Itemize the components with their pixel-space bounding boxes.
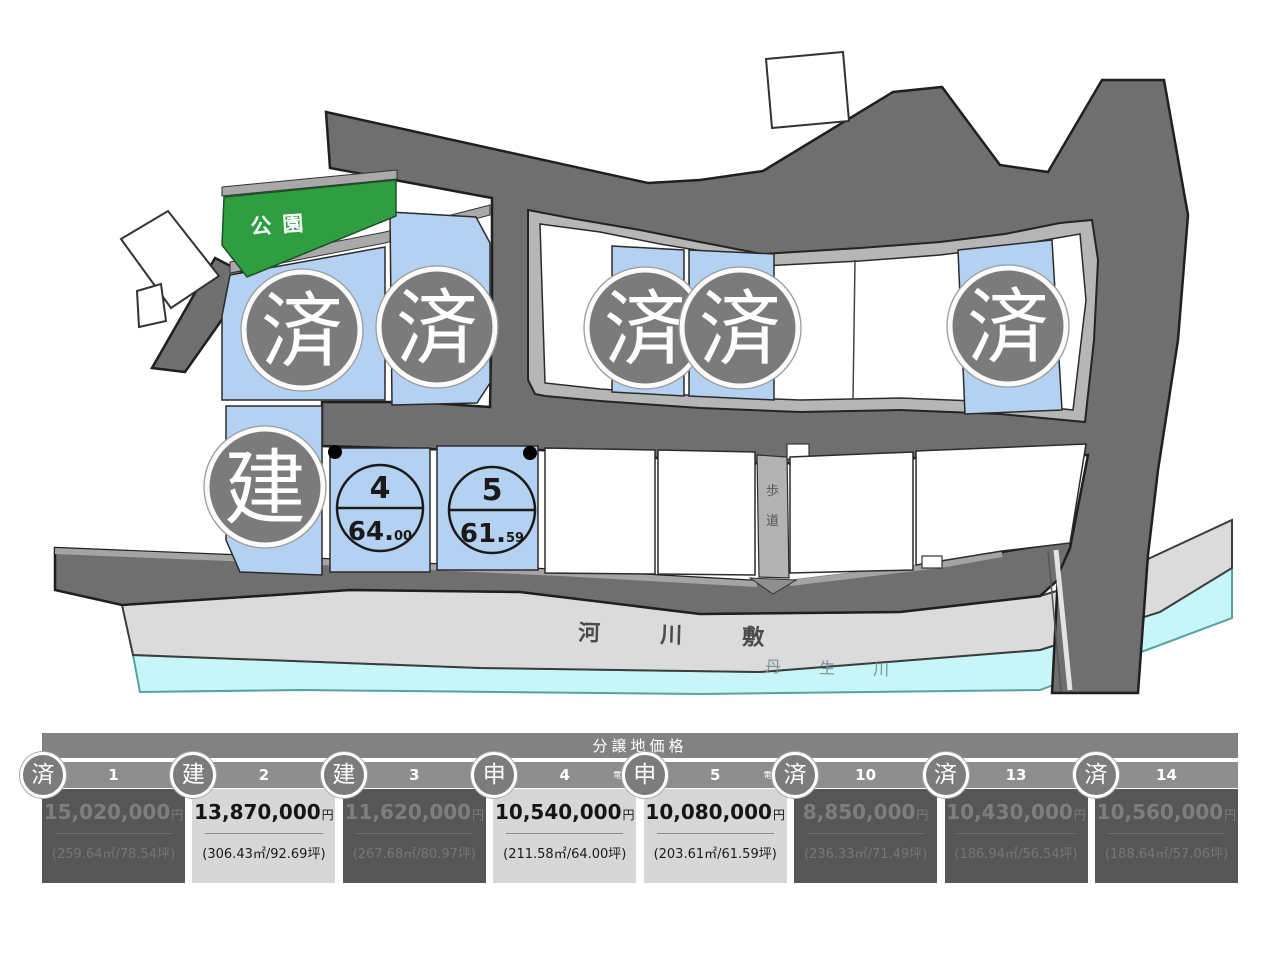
- map-lot-5: [437, 446, 538, 570]
- lot-price: 10,560,000円: [1095, 801, 1238, 823]
- electric-pole-dot-1: [328, 445, 342, 459]
- sold-glyph: 済: [604, 283, 686, 378]
- divider: [506, 833, 623, 834]
- yen-unit: 円: [322, 808, 334, 822]
- lot-card-5: 申 5 電柱 10,080,000円 (203.61㎡/61.59坪): [644, 762, 787, 883]
- lot-number: 13: [1006, 766, 1027, 784]
- map-badge-sold-4: 済: [679, 267, 801, 389]
- map-lot-4: [330, 448, 430, 572]
- divider: [55, 833, 172, 834]
- sold-glyph: 済: [699, 283, 781, 378]
- lot-card-body: 11,620,000円 (267.68㎡/80.97坪): [343, 789, 486, 883]
- status-badge: 申: [622, 752, 668, 798]
- building-top-left-2: [137, 284, 166, 327]
- lot-number: 14: [1156, 766, 1177, 784]
- lot-card-body: 13,870,000円 (306.43㎡/92.69坪): [192, 789, 335, 883]
- lot-5-size: 61.: [460, 519, 506, 549]
- lot-size: (259.64㎡/78.54坪): [42, 843, 185, 862]
- site-map-svg: 公園 4 64.00 5 61.59 済 済 済: [0, 0, 1279, 715]
- sold-glyph: 済: [967, 281, 1049, 376]
- lot-number: 3: [409, 766, 419, 784]
- divider: [957, 833, 1074, 834]
- lot-5-number: 5: [482, 473, 503, 508]
- divider: [657, 833, 774, 834]
- lot-size: (267.68㎡/80.97坪): [343, 843, 486, 862]
- lot-circle-4: 4 64.00: [337, 465, 423, 551]
- yen-unit: 円: [916, 808, 928, 822]
- map-lot-white-2: [658, 450, 755, 575]
- lot-size: (236.33㎡/71.49坪): [794, 843, 937, 862]
- lot-4-number: 4: [370, 471, 391, 506]
- lot-number: 2: [259, 766, 269, 784]
- lot-card-body: 10,430,000円 (186.94㎡/56.54坪): [945, 789, 1088, 883]
- map-lot-white-3: [790, 452, 913, 573]
- status-badge: 済: [923, 752, 969, 798]
- lot-card-1: 済 1 15,020,000円 (259.64㎡/78.54坪): [42, 762, 185, 883]
- lot-size: (306.43㎡/92.69坪): [192, 843, 335, 862]
- lot-price: 10,080,000円: [644, 801, 787, 823]
- map-badge-sold-5: 済: [947, 265, 1069, 387]
- subdivision-map: 公園 4 64.00 5 61.59 済 済 済: [0, 0, 1279, 715]
- status-badge: 建: [321, 752, 367, 798]
- divider: [356, 833, 473, 834]
- lot-size: (188.64㎡/57.06坪): [1095, 843, 1238, 862]
- map-badge-sold-2: 済: [376, 266, 498, 388]
- lot-card-body: 15,020,000円 (259.64㎡/78.54坪): [42, 789, 185, 883]
- lot-card-body: 10,080,000円 (203.61㎡/61.59坪): [644, 789, 787, 883]
- lot-size: (211.58㎡/64.00坪): [493, 843, 636, 862]
- sold-glyph: 済: [396, 282, 478, 377]
- status-badge: 済: [772, 752, 818, 798]
- lot-price: 10,540,000円: [493, 801, 636, 823]
- lot-card-body: 8,850,000円 (236.33㎡/71.49坪): [794, 789, 937, 883]
- electric-pole-dot-2: [523, 446, 537, 460]
- walkway-label-bottom: 道: [766, 514, 779, 529]
- lot-card-4: 申 4 電柱 10,540,000円 (211.58㎡/64.00坪): [493, 762, 636, 883]
- lot-price: 11,620,000円: [343, 801, 486, 823]
- lot-number: 1: [108, 766, 118, 784]
- lot-size: (186.94㎡/56.54坪): [945, 843, 1088, 862]
- lot-number: 4: [560, 766, 570, 784]
- lot-4-size: 64.: [348, 517, 394, 547]
- yen-unit: 円: [472, 808, 484, 822]
- lot-size: (203.61㎡/61.59坪): [644, 843, 787, 862]
- built-glyph: 建: [224, 442, 306, 537]
- lot-5-size-dec: 59: [506, 531, 524, 546]
- status-badge: 済: [1073, 752, 1119, 798]
- lot-card-14: 済 14 10,560,000円 (188.64㎡/57.06坪): [1095, 762, 1238, 883]
- lot-circle-5: 5 61.59: [449, 467, 535, 553]
- lot-card-body: 10,560,000円 (188.64㎡/57.06坪): [1095, 789, 1238, 883]
- map-badge-sold-1: 済: [241, 269, 363, 391]
- lot-card-3: 建 3 11,620,000円 (267.68㎡/80.97坪): [343, 762, 486, 883]
- yen-unit: 円: [623, 808, 635, 822]
- lot-number: 10: [855, 766, 876, 784]
- lot-4-size-dec: 00: [394, 529, 412, 544]
- yen-unit: 円: [773, 808, 785, 822]
- status-badge: 済: [20, 752, 66, 798]
- yen-unit: 円: [171, 808, 183, 822]
- lot-price: 13,870,000円: [192, 801, 335, 823]
- divider: [1108, 833, 1225, 834]
- price-table-cells: 済 1 15,020,000円 (259.64㎡/78.54坪) 建 2 13,…: [42, 762, 1238, 883]
- park-label: 公園: [250, 211, 316, 239]
- building-top-right: [766, 52, 849, 128]
- lot-card-body: 10,540,000円 (211.58㎡/64.00坪): [493, 789, 636, 883]
- yen-unit: 円: [1224, 808, 1236, 822]
- divider: [807, 833, 924, 834]
- lot-price: 15,020,000円: [42, 801, 185, 823]
- walkway-label-top: 歩: [766, 484, 779, 499]
- status-badge: 申: [471, 752, 517, 798]
- lot-card-2: 建 2 13,870,000円 (306.43㎡/92.69坪): [192, 762, 335, 883]
- lot-card-13: 済 13 10,430,000円 (186.94㎡/56.54坪): [945, 762, 1088, 883]
- divider: [205, 833, 322, 834]
- lot-price: 8,850,000円: [794, 801, 937, 823]
- lot-price: 10,430,000円: [945, 801, 1088, 823]
- sold-glyph: 済: [261, 285, 343, 380]
- lot-card-10: 済 10 8,850,000円 (236.33㎡/71.49坪): [794, 762, 937, 883]
- yen-unit: 円: [1074, 808, 1086, 822]
- map-badge-built: 建: [204, 426, 326, 548]
- lot-number: 5: [710, 766, 720, 784]
- lot-notch-bottom: [922, 556, 942, 568]
- price-table: 分譲地価格 済 1 15,020,000円 (259.64㎡/78.54坪) 建…: [42, 733, 1238, 883]
- map-lot-white-1: [545, 448, 655, 574]
